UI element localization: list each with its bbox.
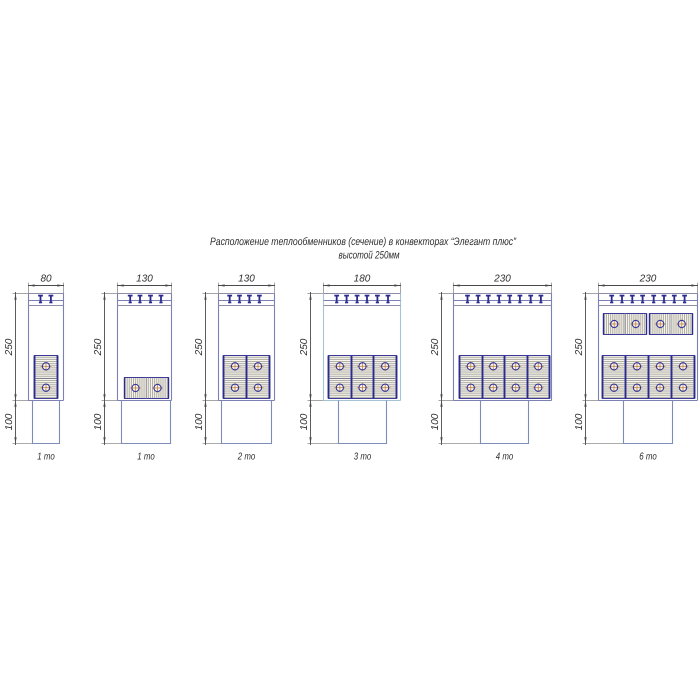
svg-text:6 mo: 6 mo — [639, 452, 657, 463]
svg-text:250: 250 — [93, 338, 104, 356]
svg-text:130: 130 — [136, 274, 153, 285]
svg-text:250: 250 — [194, 338, 205, 356]
svg-text:250: 250 — [430, 338, 441, 356]
svg-text:250: 250 — [574, 338, 585, 356]
svg-text:1 mo: 1 mo — [137, 452, 155, 463]
svg-text:250: 250 — [4, 338, 15, 356]
svg-text:4 mo: 4 mo — [496, 452, 514, 463]
svg-text:Расположение теплообменников (: Расположение теплообменников (сечение) в… — [210, 236, 516, 248]
svg-text:100: 100 — [93, 413, 104, 430]
svg-text:130: 130 — [238, 274, 255, 285]
svg-text:высотой 250мм: высотой 250мм — [339, 250, 400, 262]
svg-text:80: 80 — [40, 274, 52, 285]
svg-text:100: 100 — [194, 413, 205, 430]
svg-text:100: 100 — [574, 413, 585, 430]
svg-text:100: 100 — [299, 413, 310, 430]
svg-text:230: 230 — [639, 274, 657, 285]
svg-text:3 mo: 3 mo — [354, 452, 372, 463]
svg-text:1 mo: 1 mo — [37, 452, 55, 463]
svg-text:100: 100 — [4, 413, 15, 430]
svg-text:180: 180 — [354, 274, 371, 285]
svg-text:230: 230 — [493, 274, 511, 285]
svg-text:2 mo: 2 mo — [237, 452, 256, 463]
svg-text:250: 250 — [299, 338, 310, 356]
svg-text:100: 100 — [430, 413, 441, 430]
